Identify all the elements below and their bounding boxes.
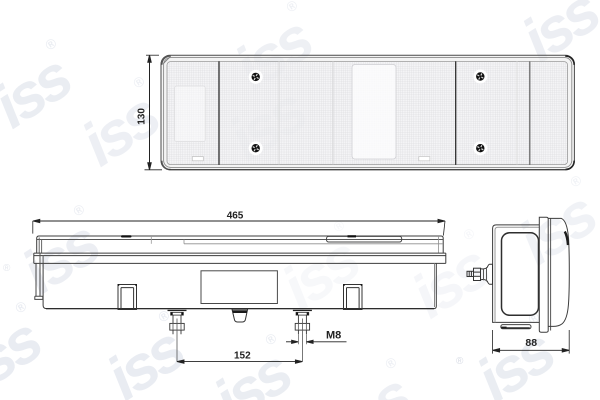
svg-text:152: 152 — [234, 350, 251, 361]
svg-text:M8: M8 — [326, 330, 341, 342]
svg-text:®: ® — [456, 356, 464, 367]
svg-text:88: 88 — [525, 337, 537, 349]
svg-text:465: 465 — [227, 210, 244, 221]
svg-text:®: ® — [3, 263, 11, 274]
svg-text:130: 130 — [137, 108, 148, 125]
